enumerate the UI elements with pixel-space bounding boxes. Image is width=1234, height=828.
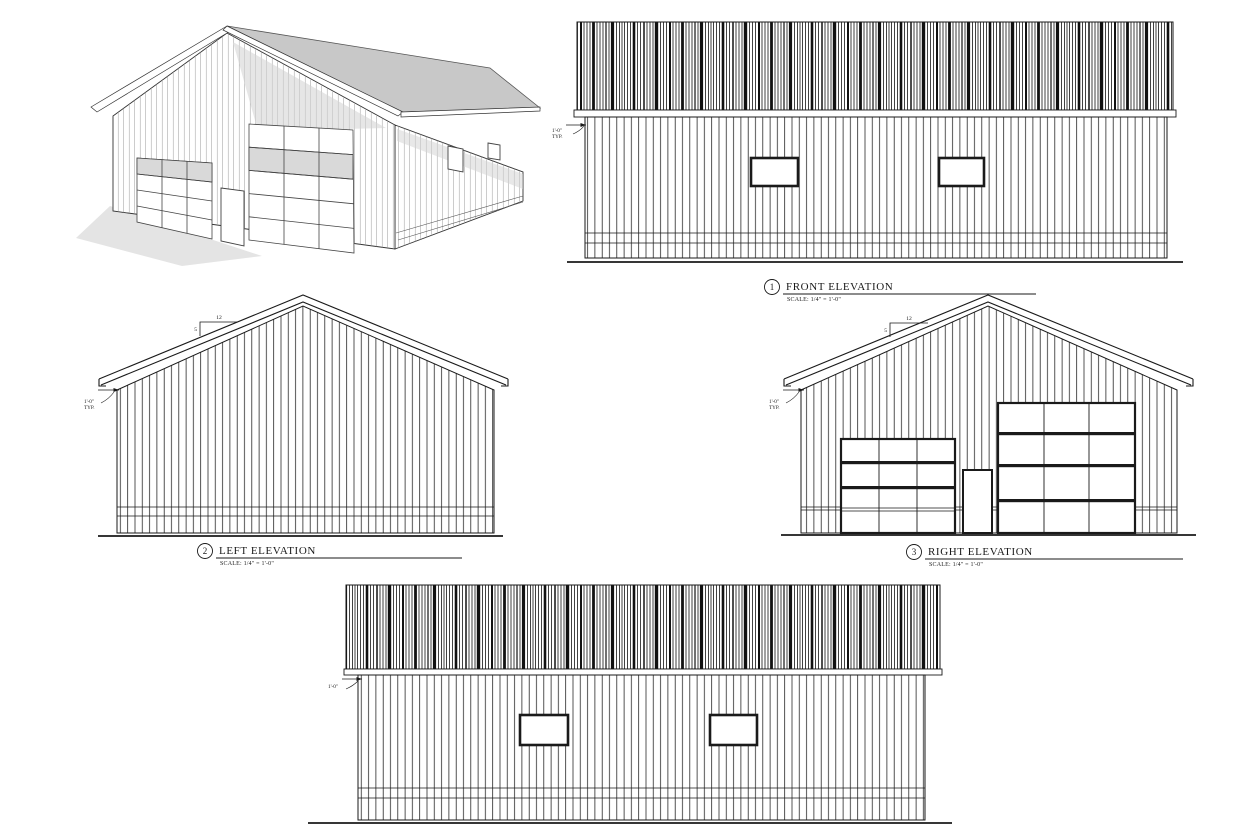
elevation-sheet-svg: 1'-0" TYP. 1 FRONT ELEVATION SCALE: 1/4"…: [0, 0, 1234, 828]
perspective-view: [76, 26, 540, 266]
view-title: LEFT ELEVATION: [219, 545, 316, 557]
pitch-rise: 5: [194, 327, 197, 333]
door-rail: [999, 499, 1134, 502]
fascia-band: [344, 669, 942, 675]
left-elevation: 12 5 1'-0" TYP. 2 LEFT ELEVATION SCALE: …: [84, 295, 508, 567]
elevation-drawing-sheet: 1'-0" TYP. 1 FRONT ELEVATION SCALE: 1/4"…: [0, 0, 1234, 828]
view-title: RIGHT ELEVATION: [928, 546, 1033, 558]
roof-panel-band: [577, 22, 1173, 110]
fascia-band: [574, 110, 1176, 117]
garage-door-large: [998, 403, 1135, 533]
man-door: [963, 470, 992, 533]
door-rail: [842, 486, 954, 489]
window-1: [751, 158, 798, 186]
window-2: [710, 715, 757, 745]
garage-door-large-3d: [249, 124, 354, 253]
view-title: FRONT ELEVATION: [786, 281, 893, 293]
eave-overhang-note: 1'-0" TYP.: [84, 388, 119, 411]
view-scale: SCALE: 1/4" = 1'-0": [929, 562, 983, 568]
door-rail: [999, 464, 1134, 467]
eave-overhang-note: 1'-0" TYP.: [552, 123, 586, 140]
view-label-left: 2 LEFT ELEVATION SCALE: 1/4" = 1'-0": [198, 544, 463, 568]
door-rail: [999, 432, 1134, 435]
roof-pitch-indicator: 12 5: [884, 316, 928, 337]
gable-wall-siding: [117, 306, 494, 533]
roof-pitch-indicator: 12 5: [194, 315, 238, 336]
eave-dim-text: 1'-0": [328, 684, 338, 690]
garage-door-small: [841, 439, 955, 533]
eave-typ-text: TYP.: [552, 134, 563, 140]
eave-typ-text: TYP.: [769, 405, 780, 411]
wall-siding: [585, 117, 1167, 258]
view-number: 1: [770, 282, 775, 292]
side-window-2-3d: [488, 143, 500, 160]
right-elevation: 12 5 1'-0" TYP. 3 RIGHT ELEVATION SCALE:…: [769, 295, 1196, 568]
pitch-run: 12: [216, 315, 222, 321]
door-rail: [842, 461, 954, 464]
man-door-3d: [221, 188, 244, 246]
roof-panel-band: [346, 585, 940, 669]
rear-elevation: 1'-0": [308, 585, 952, 823]
view-scale: SCALE: 1/4" = 1'-0": [220, 561, 274, 567]
eave-overhang-note: 1'-0": [328, 677, 362, 690]
view-scale: SCALE: 1/4" = 1'-0": [787, 297, 841, 303]
pitch-run: 12: [906, 316, 912, 322]
view-label-right: 3 RIGHT ELEVATION SCALE: 1/4" = 1'-0": [907, 545, 1184, 569]
view-number: 3: [912, 547, 917, 557]
eave-overhang-note: 1'-0" TYP.: [769, 388, 804, 411]
window-1: [520, 715, 568, 745]
side-window-1-3d: [448, 146, 463, 172]
window-2: [939, 158, 984, 186]
view-number: 2: [203, 546, 208, 556]
eave-typ-text: TYP.: [84, 405, 95, 411]
front-elevation: 1'-0" TYP. 1 FRONT ELEVATION SCALE: 1/4"…: [552, 22, 1183, 303]
view-label-front: 1 FRONT ELEVATION SCALE: 1/4" = 1'-0": [765, 280, 1037, 304]
pitch-rise: 5: [884, 328, 887, 334]
